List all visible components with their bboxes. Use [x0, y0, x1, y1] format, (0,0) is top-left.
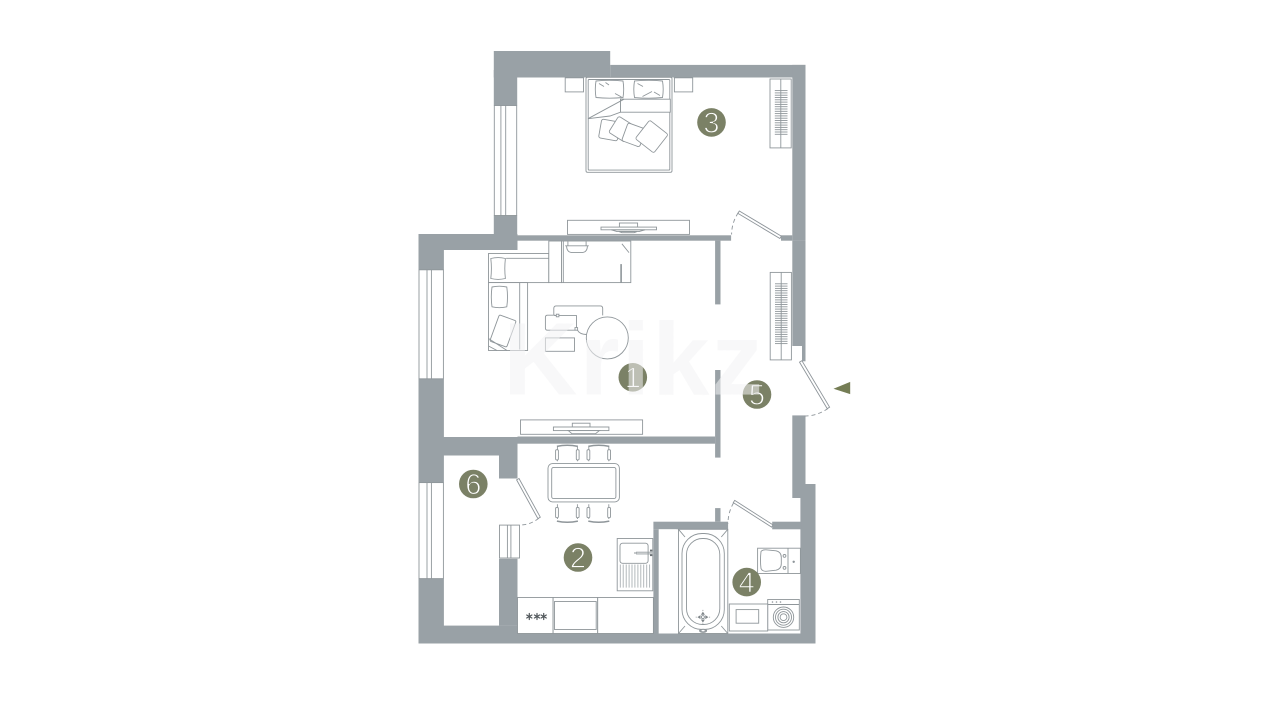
svg-text:4: 4	[739, 567, 755, 599]
svg-text:6: 6	[465, 469, 481, 501]
svg-text:Krikz: Krikz	[503, 301, 765, 416]
svg-text:3: 3	[703, 108, 719, 140]
svg-text:2: 2	[570, 543, 586, 575]
